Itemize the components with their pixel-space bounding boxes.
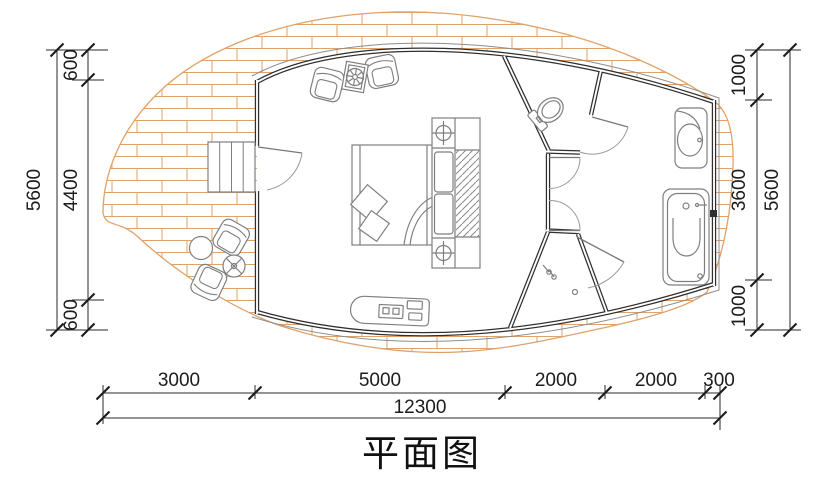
dim-left-seg-mid: 4400 — [61, 169, 82, 211]
wardrobe — [432, 118, 481, 268]
floor-plan-page: 5600 600 4400 600 1000 3600 1000 5600 — [0, 0, 837, 496]
dim-bottom-total: 12300 — [394, 397, 447, 418]
dimension-right: 1000 3600 1000 5600 — [729, 44, 801, 337]
dimension-bottom: 3000 5000 2000 2000 300 12300 — [97, 370, 735, 430]
dim-left-total: 5600 — [24, 169, 45, 211]
dim-right-total: 5600 — [762, 169, 783, 211]
dimension-left: 5600 600 4400 600 — [24, 44, 108, 337]
sink — [675, 108, 707, 168]
dim-bottom-seg-2: 5000 — [359, 370, 401, 391]
plant-table — [342, 61, 369, 92]
dim-right-seg-top: 1000 — [729, 54, 750, 96]
dim-bottom-seg-3: 2000 — [535, 370, 577, 391]
outdoor-table — [223, 255, 245, 277]
dim-bottom-seg-5: 300 — [703, 370, 735, 391]
wall-joint-block — [710, 210, 717, 217]
lounge-chair — [364, 53, 400, 90]
drawing-title: 平面图 — [362, 433, 482, 474]
dim-left-seg-top: 600 — [61, 49, 82, 81]
console-table — [350, 296, 430, 326]
dim-bottom-seg-1: 3000 — [158, 370, 200, 391]
bathtub — [663, 189, 709, 285]
dim-right-seg-bottom: 1000 — [729, 285, 750, 327]
dim-bottom-seg-4: 2000 — [635, 370, 677, 391]
outdoor-stool — [190, 237, 213, 260]
floor-plan-drawing: 5600 600 4400 600 1000 3600 1000 5600 — [0, 0, 837, 496]
wardrobe-hatch — [456, 150, 479, 237]
bed — [351, 145, 433, 245]
dim-left-seg-bottom: 600 — [61, 299, 82, 331]
entry-stairs — [208, 142, 255, 192]
dim-right-seg-mid: 3600 — [729, 169, 750, 211]
